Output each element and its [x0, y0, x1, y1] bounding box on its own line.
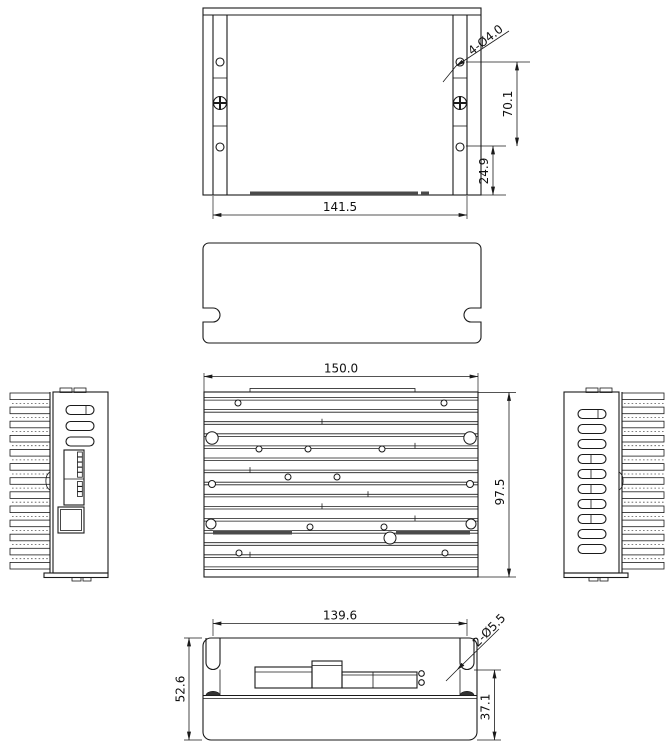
screw-head	[460, 691, 474, 695]
dim-body-height: 37.1	[474, 670, 501, 740]
mount-hole	[216, 143, 224, 151]
terminal-pin	[78, 457, 83, 462]
dim-overall-height: 52.6	[174, 638, 203, 740]
dim-label-overall-height: 52.6	[174, 676, 188, 703]
terminal-connector	[255, 667, 312, 688]
dim-label-front-width: 150.0	[324, 362, 358, 376]
right-mount-slot	[460, 638, 474, 696]
signal-connector	[342, 672, 417, 688]
heatsink-fins-left	[10, 393, 50, 569]
connector-edge-bar	[421, 192, 429, 196]
vent-slots	[578, 410, 606, 554]
dim-front-height: 97.5	[478, 393, 516, 578]
terminal-pin	[78, 467, 83, 472]
bottom-plate	[44, 573, 108, 578]
left-mounting-rail	[213, 15, 227, 195]
dim-label-top-width: 141.5	[323, 200, 357, 214]
drawing-page: 141.5 70.1 24.9 4-Ø4.0	[0, 0, 672, 753]
terminal-pin	[78, 482, 83, 487]
edge-bump	[46, 472, 50, 490]
mount-hole	[456, 143, 464, 151]
terminal-pin	[78, 452, 83, 457]
fin-lines	[204, 398, 478, 570]
screw-head	[206, 691, 220, 695]
top-view: 141.5 70.1 24.9 4-Ø4.0	[203, 8, 530, 219]
dim-label-hole-offset: 24.9	[477, 158, 491, 185]
right-mounting-rail	[453, 15, 467, 195]
dim-label-mount-holes: 4-Ø4.0	[465, 22, 506, 58]
dark-slot-bar	[396, 531, 470, 535]
dim-bottom-width: 139.6	[213, 609, 467, 637]
cover-view	[203, 243, 481, 343]
dim-top-width: 141.5	[213, 196, 467, 219]
bottom-plate	[564, 573, 628, 578]
dim-label-front-height: 97.5	[493, 479, 507, 506]
dim-label-slot-holes: 2-Ø5.5	[470, 611, 509, 650]
led-indicator	[419, 671, 425, 677]
dim-hole-span: 70.1	[466, 62, 530, 146]
dim-front-width: 150.0	[204, 362, 478, 393]
front-view: 150.0 97.5	[204, 362, 516, 578]
center-connector	[312, 661, 342, 688]
led-indicator	[419, 680, 425, 686]
terminal-pin	[78, 462, 83, 467]
heatsink-fins-right	[622, 393, 664, 569]
bottom-connectors	[255, 661, 424, 688]
dark-slot-bar	[213, 531, 292, 535]
bottom-outline	[203, 638, 477, 740]
terminal-pin	[78, 492, 83, 497]
terminal-pin	[78, 472, 83, 477]
right-side-view	[564, 388, 664, 581]
left-mount-slot	[206, 638, 220, 696]
dim-hole-offset: 24.9	[466, 146, 506, 195]
terminal-block	[64, 450, 84, 505]
mount-hole	[216, 58, 224, 66]
side-body-outline	[564, 392, 619, 573]
dim-label-hole-span: 70.1	[501, 91, 515, 118]
vent-slots	[66, 406, 94, 447]
bottom-view: 139.6 52.6 37.1 2-Ø5.5	[174, 609, 509, 741]
engineering-drawing: 141.5 70.1 24.9 4-Ø4.0	[0, 0, 672, 753]
side-body-outline	[53, 392, 108, 573]
dim-label-bottom-width: 139.6	[323, 609, 357, 623]
dim-label-body-height: 37.1	[479, 694, 493, 721]
connector-edge-bar	[250, 192, 418, 196]
phillips-screw	[453, 96, 467, 110]
terminal-pin	[78, 487, 83, 492]
connector-box	[58, 507, 84, 533]
cover-outline	[203, 243, 481, 343]
left-side-view	[10, 388, 108, 581]
top-view-outline	[203, 8, 481, 195]
phillips-screw	[213, 96, 227, 110]
